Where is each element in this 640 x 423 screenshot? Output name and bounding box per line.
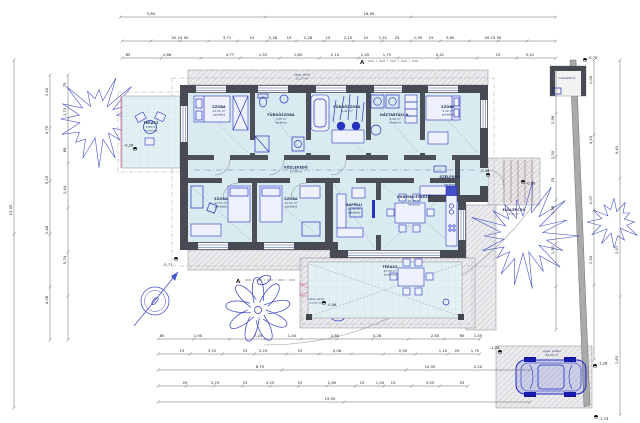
dimension-value: 3,60 <box>446 35 455 40</box>
dimension-value: 1,00 <box>550 85 555 94</box>
svg-text:20,56 m²: 20,56 m² <box>545 353 558 357</box>
dimension-value: 3,75 <box>44 125 49 134</box>
dimension-value: 4,28 <box>373 333 382 338</box>
dimension-value: 15 <box>243 348 248 353</box>
dimension-value: 4,40 <box>614 145 619 154</box>
dimension-value: 1,44 <box>62 185 67 194</box>
svg-text:-1,73: -1,73 <box>599 417 608 421</box>
dimension-value: 5,06 <box>333 348 342 353</box>
interior-floor <box>333 242 458 250</box>
interior-floor <box>458 93 480 195</box>
dimension-value: 1,45 <box>361 52 370 57</box>
dimension-value: 15 <box>298 380 303 385</box>
svg-text:parketta: parketta <box>213 113 225 117</box>
dimension-value: 2,15 <box>344 35 353 40</box>
ornamental-tree-icon <box>226 278 290 341</box>
room-label-elolepcso: ELŐLÉPCSŐ 5,21 m² <box>503 207 526 216</box>
dimension-value: 10,55 <box>8 204 13 215</box>
level-marker-icon: -1,73 <box>594 415 608 421</box>
svg-text:-0,90: -0,90 <box>526 182 536 186</box>
dimension-value: 1,90 <box>194 333 203 338</box>
dimension-value: 15 <box>250 35 255 40</box>
dim-row: 10,55 <box>8 204 13 215</box>
svg-text:kerámia: kerámia <box>444 183 456 187</box>
dimension-value: 15,55 <box>325 396 336 401</box>
dimension-value: 2,65 <box>328 380 337 385</box>
floor-plan-sheet: 3,6018,95 50 15 503,71152,28152,28152,15… <box>0 0 640 423</box>
dimension-value: 2,28 <box>304 35 313 40</box>
dimension-value: 1,53 <box>259 52 268 57</box>
svg-text:11,27 m²: 11,27 m² <box>295 77 308 81</box>
svg-text:kerámia: kerámia <box>275 121 287 125</box>
room-label-szoba-1: SZOBA 12,05 m² parketta <box>212 105 226 117</box>
section-label: A <box>236 279 241 285</box>
dim-row: 6,7510,552,20 <box>256 364 483 369</box>
dim-row: 1,403,755,251,484,08 <box>44 87 49 304</box>
dimension-value: 1,70 <box>471 348 480 353</box>
dimension-value: 15 <box>326 35 331 40</box>
dimension-value: 5,41 <box>436 52 445 57</box>
dimension-value: 4,77 <box>226 52 235 57</box>
dim-row: 3,6018,95 <box>147 11 375 16</box>
room-label-hulladektarolo: hulladéktároló <box>558 77 576 80</box>
svg-text:burkolva: burkolva <box>384 273 397 277</box>
room-label-terasz-back: TERASZ 32,50 m² burkolva <box>382 265 398 277</box>
room-label-szoba-3: SZOBA 12,53 m² parketta <box>214 197 228 209</box>
svg-text:-0,26: -0,26 <box>124 144 134 148</box>
dimension-value: 15 <box>180 348 185 353</box>
dimension-value: 68 <box>62 147 67 152</box>
dimension-value: 25 <box>460 380 465 385</box>
svg-text:-1,24: -1,24 <box>490 346 500 350</box>
dimension-value: 15 <box>287 35 292 40</box>
dimension-value: 1,75 <box>383 52 392 57</box>
room-label-hatso-jarda: hátsó járda 17,57 m² <box>308 297 324 305</box>
floor-plan-drawing: 3,6018,95 50 15 503,71152,28152,28152,15… <box>0 0 640 423</box>
level-marker-icon: -1,28 <box>593 362 608 368</box>
dimension-value: 3,71 <box>223 35 232 40</box>
dimension-value: 50 15 50 <box>172 35 189 40</box>
svg-text:parketta: parketta <box>285 205 297 209</box>
room-label-szoba-2: SZOBA 9,30 m² parketta <box>441 105 455 117</box>
dim-row: 1,001,981,50251,981,50 <box>550 85 555 254</box>
dimension-value: 5,25 <box>44 175 49 184</box>
dimension-value: 1,40 <box>44 87 49 96</box>
dim-row: 751,73681,445,74 <box>62 82 67 264</box>
dimension-value: 2,50 <box>399 348 408 353</box>
dimension-value: 7,20 <box>254 333 263 338</box>
dimension-value: 2,07 <box>588 195 593 204</box>
dimension-value: 85 <box>160 333 165 338</box>
svg-text:17,57 m²: 17,57 m² <box>309 301 322 305</box>
dimension-value: 15 <box>391 380 396 385</box>
dimension-value: 25 <box>550 177 555 182</box>
dimension-value: 2,85 <box>431 333 440 338</box>
svg-text:-0,75: -0,75 <box>588 56 597 60</box>
svg-text:parketta: parketta <box>442 113 454 117</box>
room-label-szeg-jarda: szeg. járda 11,27 m² <box>294 73 310 81</box>
dimension-value: 2,28 <box>269 35 278 40</box>
dimension-value: 10,55 <box>425 364 436 369</box>
dimension-value: 3,55 <box>426 380 435 385</box>
terrace-post <box>306 314 312 320</box>
dimension-value: 1,50 <box>376 380 385 385</box>
dimension-value: 1,48 <box>44 225 49 234</box>
dimension-value: 1,50 <box>588 255 593 264</box>
dimension-value: 3,25 <box>259 348 268 353</box>
dimension-value: 10 <box>364 35 369 40</box>
dimension-value: 1,98 <box>550 115 555 124</box>
front-walkway-pavement <box>188 70 488 85</box>
dimension-value: 50 15 50 <box>485 35 502 40</box>
dimension-value: 2,86 <box>163 52 172 57</box>
svg-text:-0,36: -0,36 <box>480 169 490 173</box>
dimension-value: 85 <box>126 52 131 57</box>
dim-row: 852,864,771,531,852,101,451,755,41155,41 <box>126 52 535 57</box>
svg-text:kerámia: kerámia <box>389 121 401 125</box>
svg-text:-0,71: -0,71 <box>163 263 172 267</box>
level-marker-icon: -0,75 <box>583 56 597 62</box>
svg-text:burkolva: burkolva <box>145 129 158 133</box>
dimension-value: 65 <box>460 333 465 338</box>
dimension-value: 1,10 <box>439 348 448 353</box>
room-label-nappali: NAPPALI 21,35 m² parketta <box>346 203 363 215</box>
dimension-value: 3,25 <box>208 348 217 353</box>
dimension-value: 25 <box>183 380 188 385</box>
dimension-value: 4,15 <box>588 135 593 144</box>
dimension-value: 1,50 <box>550 245 555 254</box>
dimension-value: 3,25 <box>266 380 275 385</box>
dimension-value: 1,45 <box>474 333 483 338</box>
svg-text:-1,28: -1,28 <box>598 362 608 366</box>
dimension-value: 1,73 <box>62 107 67 116</box>
room-label-szoba-4: SZOBA 12,53 m² parketta <box>284 197 298 209</box>
dimension-value: 25 <box>395 35 400 40</box>
svg-text:parketta: parketta <box>215 205 227 209</box>
svg-text:-0,56: -0,56 <box>327 303 337 307</box>
north-arrow-icon <box>134 272 178 326</box>
dimension-value: 5,74 <box>62 255 67 264</box>
dimension-value: 15 <box>496 52 501 57</box>
dim-row: 851,907,201,402,854,282,85651,45 <box>160 333 483 338</box>
dimension-value: 15 <box>243 380 248 385</box>
dimension-value: 1,98 <box>550 205 555 214</box>
svg-text:kerámia: kerámia <box>408 203 420 207</box>
dimension-value: 25 <box>455 348 460 353</box>
svg-text:5,21 m²: 5,21 m² <box>508 212 519 216</box>
svg-text:parketta: parketta <box>348 211 360 215</box>
dimension-value: 3,25 <box>211 380 220 385</box>
dimension-value: 1,40 <box>288 333 297 338</box>
svg-text:13,40 m²: 13,40 m² <box>289 170 302 174</box>
section-label: A <box>360 60 365 66</box>
dim-row: 253,25153,25152,65151,50153,5525 <box>183 380 465 385</box>
level-marker-icon: -0,71 <box>163 257 178 267</box>
dimension-value: 6,75 <box>256 364 265 369</box>
section-marker-a-top: A <box>360 60 418 66</box>
dimension-value: 1,51 <box>379 35 388 40</box>
dimension-value: 18,95 <box>364 11 375 16</box>
car-icon <box>516 357 586 397</box>
dimension-value: 15 <box>360 380 365 385</box>
dimension-value: 2,97 <box>614 245 619 254</box>
dimension-value: 2,10 <box>331 52 340 57</box>
dimension-value: 1,50 <box>550 150 555 159</box>
dimension-value: 1,63 <box>614 355 619 364</box>
ornamental-tree-trunk <box>255 307 262 314</box>
dim-row: 15,55 <box>325 396 336 401</box>
dimension-value: 5,41 <box>526 52 535 57</box>
dimension-value: 2,20 <box>474 364 483 369</box>
dimension-value: 15 <box>429 35 434 40</box>
dim-row: 153,25153,25155,062,501,10251,70 <box>180 348 480 353</box>
deciduous-tree-icon <box>587 198 638 248</box>
dimension-value: 1,85 <box>294 52 303 57</box>
section-marker-a-bottom: A <box>236 279 295 285</box>
dimension-value: 4,08 <box>44 295 49 304</box>
dim-row: 50 15 503,71152,28152,28152,15101,51251,… <box>172 35 502 40</box>
dimension-value: 1,95 <box>414 35 423 40</box>
dimension-value: 75 <box>62 82 67 87</box>
dimension-value: 1,00 <box>588 75 593 84</box>
room-label-gepkocsi-beallo: gépk. beálló 20,56 m² <box>543 349 561 357</box>
svg-text:hulladéktároló: hulladéktároló <box>558 77 576 80</box>
terrace-post <box>458 314 464 320</box>
dim-row: 1,004,152,071,50 <box>588 75 593 264</box>
dimension-value: 3,60 <box>147 11 156 16</box>
dimension-value: 2,85 <box>331 333 340 338</box>
dimension-value: 15 <box>298 348 303 353</box>
svg-text:6,41 m²: 6,41 m² <box>341 109 352 113</box>
dim-row: 4,402,971,63 <box>614 145 619 364</box>
